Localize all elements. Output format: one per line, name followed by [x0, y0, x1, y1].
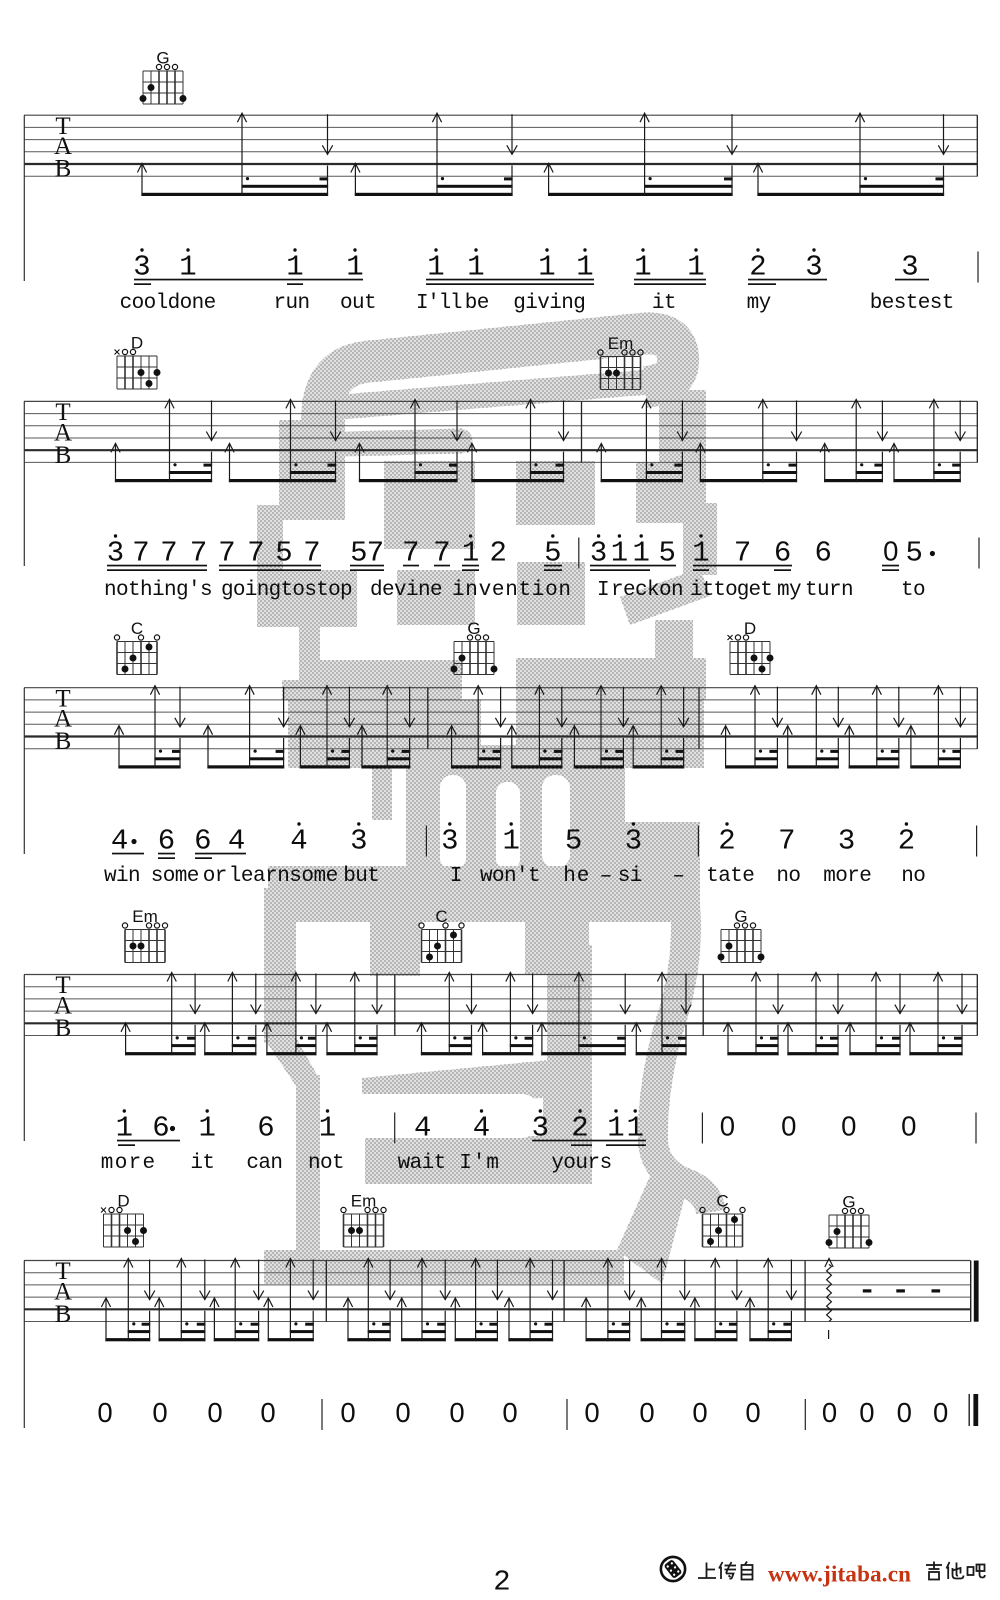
svg-text:3: 3 [532, 1112, 549, 1145]
svg-text:more: more [823, 865, 871, 888]
svg-text:but: but [343, 865, 379, 888]
svg-text:Em: Em [351, 1192, 377, 1211]
svg-text:some: some [151, 865, 199, 888]
svg-text:1: 1 [502, 825, 519, 858]
svg-text:B: B [55, 442, 72, 469]
svg-text:0: 0 [449, 1397, 464, 1428]
svg-text:1: 1 [462, 537, 479, 570]
svg-text:2: 2 [718, 825, 735, 858]
svg-text:B: B [55, 728, 72, 755]
svg-text:7: 7 [160, 537, 177, 570]
svg-text:it: it [652, 292, 676, 315]
svg-text:5: 5 [544, 537, 561, 570]
svg-text:1: 1 [607, 1112, 624, 1145]
svg-text:3: 3 [350, 825, 367, 858]
svg-text:7: 7 [247, 537, 264, 570]
svg-text:7: 7 [778, 825, 795, 858]
svg-text:0: 0 [901, 1111, 916, 1142]
svg-text:0: 0 [745, 1397, 760, 1428]
svg-text:be: be [465, 292, 489, 315]
svg-text:6: 6 [194, 825, 211, 858]
svg-text:3: 3 [805, 251, 822, 284]
svg-text:2: 2 [571, 1112, 588, 1145]
svg-text:2: 2 [493, 1566, 510, 1599]
svg-text:giving: giving [513, 292, 585, 315]
svg-text:5: 5 [905, 537, 922, 570]
svg-text:bestest: bestest [870, 292, 954, 315]
svg-text:3: 3 [107, 537, 124, 570]
svg-text:1: 1 [687, 251, 704, 284]
svg-text:0: 0 [152, 1397, 167, 1428]
svg-text:to: to [901, 579, 925, 602]
svg-text:4: 4 [111, 825, 128, 858]
svg-text:3: 3 [901, 251, 918, 284]
svg-text:–: – [600, 865, 612, 888]
svg-text:6: 6 [257, 1112, 274, 1145]
svg-text:1: 1 [632, 537, 649, 570]
svg-text:4: 4 [228, 825, 245, 858]
svg-text:my: my [777, 579, 801, 602]
svg-text:turn: turn [805, 579, 853, 602]
svg-text:0: 0 [207, 1397, 222, 1428]
svg-text:0: 0 [859, 1397, 874, 1428]
svg-text:4: 4 [290, 825, 307, 858]
svg-text:3: 3 [133, 251, 150, 284]
svg-text:1: 1 [427, 251, 444, 284]
svg-text:7: 7 [734, 537, 751, 570]
svg-text:7: 7 [303, 537, 320, 570]
svg-text:0: 0 [502, 1397, 517, 1428]
svg-text:4: 4 [414, 1112, 431, 1145]
svg-text:2: 2 [749, 251, 766, 284]
svg-text:invention: invention [452, 579, 572, 602]
svg-text:7: 7 [402, 537, 419, 570]
svg-text:–: – [672, 865, 684, 888]
svg-text:goingtostop: goingtostop [221, 579, 352, 602]
svg-text:yours: yours [551, 1152, 612, 1175]
svg-text:no: no [776, 865, 800, 888]
svg-text:it: it [190, 1152, 214, 1175]
svg-text:I'll: I'll [416, 292, 462, 315]
svg-text:Em: Em [132, 907, 158, 926]
svg-text:www.jitaba.cn: www.jitaba.cn [768, 1562, 911, 1587]
svg-text:Em: Em [608, 334, 634, 353]
svg-text:0: 0 [841, 1111, 856, 1142]
svg-text:0: 0 [781, 1111, 796, 1142]
svg-text:7: 7 [190, 537, 207, 570]
svg-text:1: 1 [319, 1112, 336, 1145]
svg-text:cooldone: cooldone [120, 292, 216, 315]
svg-text:5: 5 [565, 825, 582, 858]
svg-text:si: si [618, 865, 642, 888]
svg-text:7: 7 [132, 537, 149, 570]
svg-text:1: 1 [626, 1112, 643, 1145]
svg-text:1: 1 [346, 251, 363, 284]
svg-text:6: 6 [774, 537, 791, 570]
svg-text:devine: devine [370, 579, 442, 602]
svg-text:6: 6 [814, 537, 831, 570]
svg-text:7: 7 [218, 537, 235, 570]
svg-text:5: 5 [275, 537, 292, 570]
svg-text:my: my [747, 292, 771, 315]
svg-text:he: he [563, 865, 590, 888]
svg-text:0: 0 [897, 1397, 912, 1428]
svg-text:tate: tate [706, 865, 754, 888]
svg-text:0: 0 [340, 1397, 355, 1428]
svg-text:learnsome: learnsome [229, 865, 338, 888]
svg-text:7: 7 [367, 537, 384, 570]
svg-text:5: 5 [658, 537, 675, 570]
svg-text:0: 0 [883, 536, 898, 567]
svg-text:6: 6 [152, 1112, 169, 1145]
svg-text:2: 2 [489, 537, 506, 570]
svg-text:7: 7 [433, 537, 450, 570]
svg-text:B: B [55, 156, 72, 183]
svg-text:3: 3 [441, 825, 458, 858]
svg-text:win: win [104, 865, 140, 888]
svg-text:0: 0 [822, 1397, 837, 1428]
svg-text:1: 1 [467, 251, 484, 284]
svg-text:I: I [450, 865, 462, 888]
svg-text:B: B [55, 1015, 72, 1042]
svg-text:6: 6 [158, 825, 175, 858]
svg-text:not: not [308, 1152, 344, 1175]
svg-text:1: 1 [286, 251, 303, 284]
svg-text:wait: wait [398, 1152, 446, 1175]
svg-text:1: 1 [116, 1112, 133, 1145]
svg-text:run: run [274, 292, 310, 315]
svg-text:no: no [901, 865, 925, 888]
svg-text:3: 3 [838, 825, 855, 858]
svg-text:1: 1 [538, 251, 555, 284]
svg-text:0: 0 [584, 1397, 599, 1428]
svg-text:B: B [55, 1301, 72, 1328]
svg-text:1: 1 [198, 1112, 215, 1145]
svg-text:1: 1 [634, 251, 651, 284]
svg-text:I'm: I'm [459, 1152, 500, 1175]
svg-text:out: out [340, 292, 376, 315]
svg-text:1: 1 [692, 537, 709, 570]
svg-text:0: 0 [639, 1397, 654, 1428]
svg-text:more: more [101, 1152, 157, 1175]
svg-text:1: 1 [611, 537, 628, 570]
svg-text:0: 0 [692, 1397, 707, 1428]
svg-text:0: 0 [260, 1397, 275, 1428]
svg-text:can: can [246, 1152, 282, 1175]
svg-text:1: 1 [179, 251, 196, 284]
svg-text:0: 0 [720, 1111, 735, 1142]
svg-text:1: 1 [576, 251, 593, 284]
svg-text:0: 0 [933, 1397, 948, 1428]
svg-text:4: 4 [473, 1112, 490, 1145]
svg-text:3: 3 [625, 825, 642, 858]
svg-text:I: I [597, 579, 609, 602]
svg-text:nothing's: nothing's [104, 579, 212, 602]
svg-text:0: 0 [97, 1397, 112, 1428]
svg-text:or: or [203, 865, 227, 888]
svg-text:2: 2 [898, 825, 915, 858]
svg-text:5: 5 [350, 537, 367, 570]
svg-text:0: 0 [395, 1397, 410, 1428]
svg-text:won't: won't [480, 865, 540, 888]
svg-text:ittoget: ittoget [690, 579, 772, 602]
svg-text:3: 3 [590, 537, 607, 570]
svg-text:reckon: reckon [611, 579, 683, 602]
